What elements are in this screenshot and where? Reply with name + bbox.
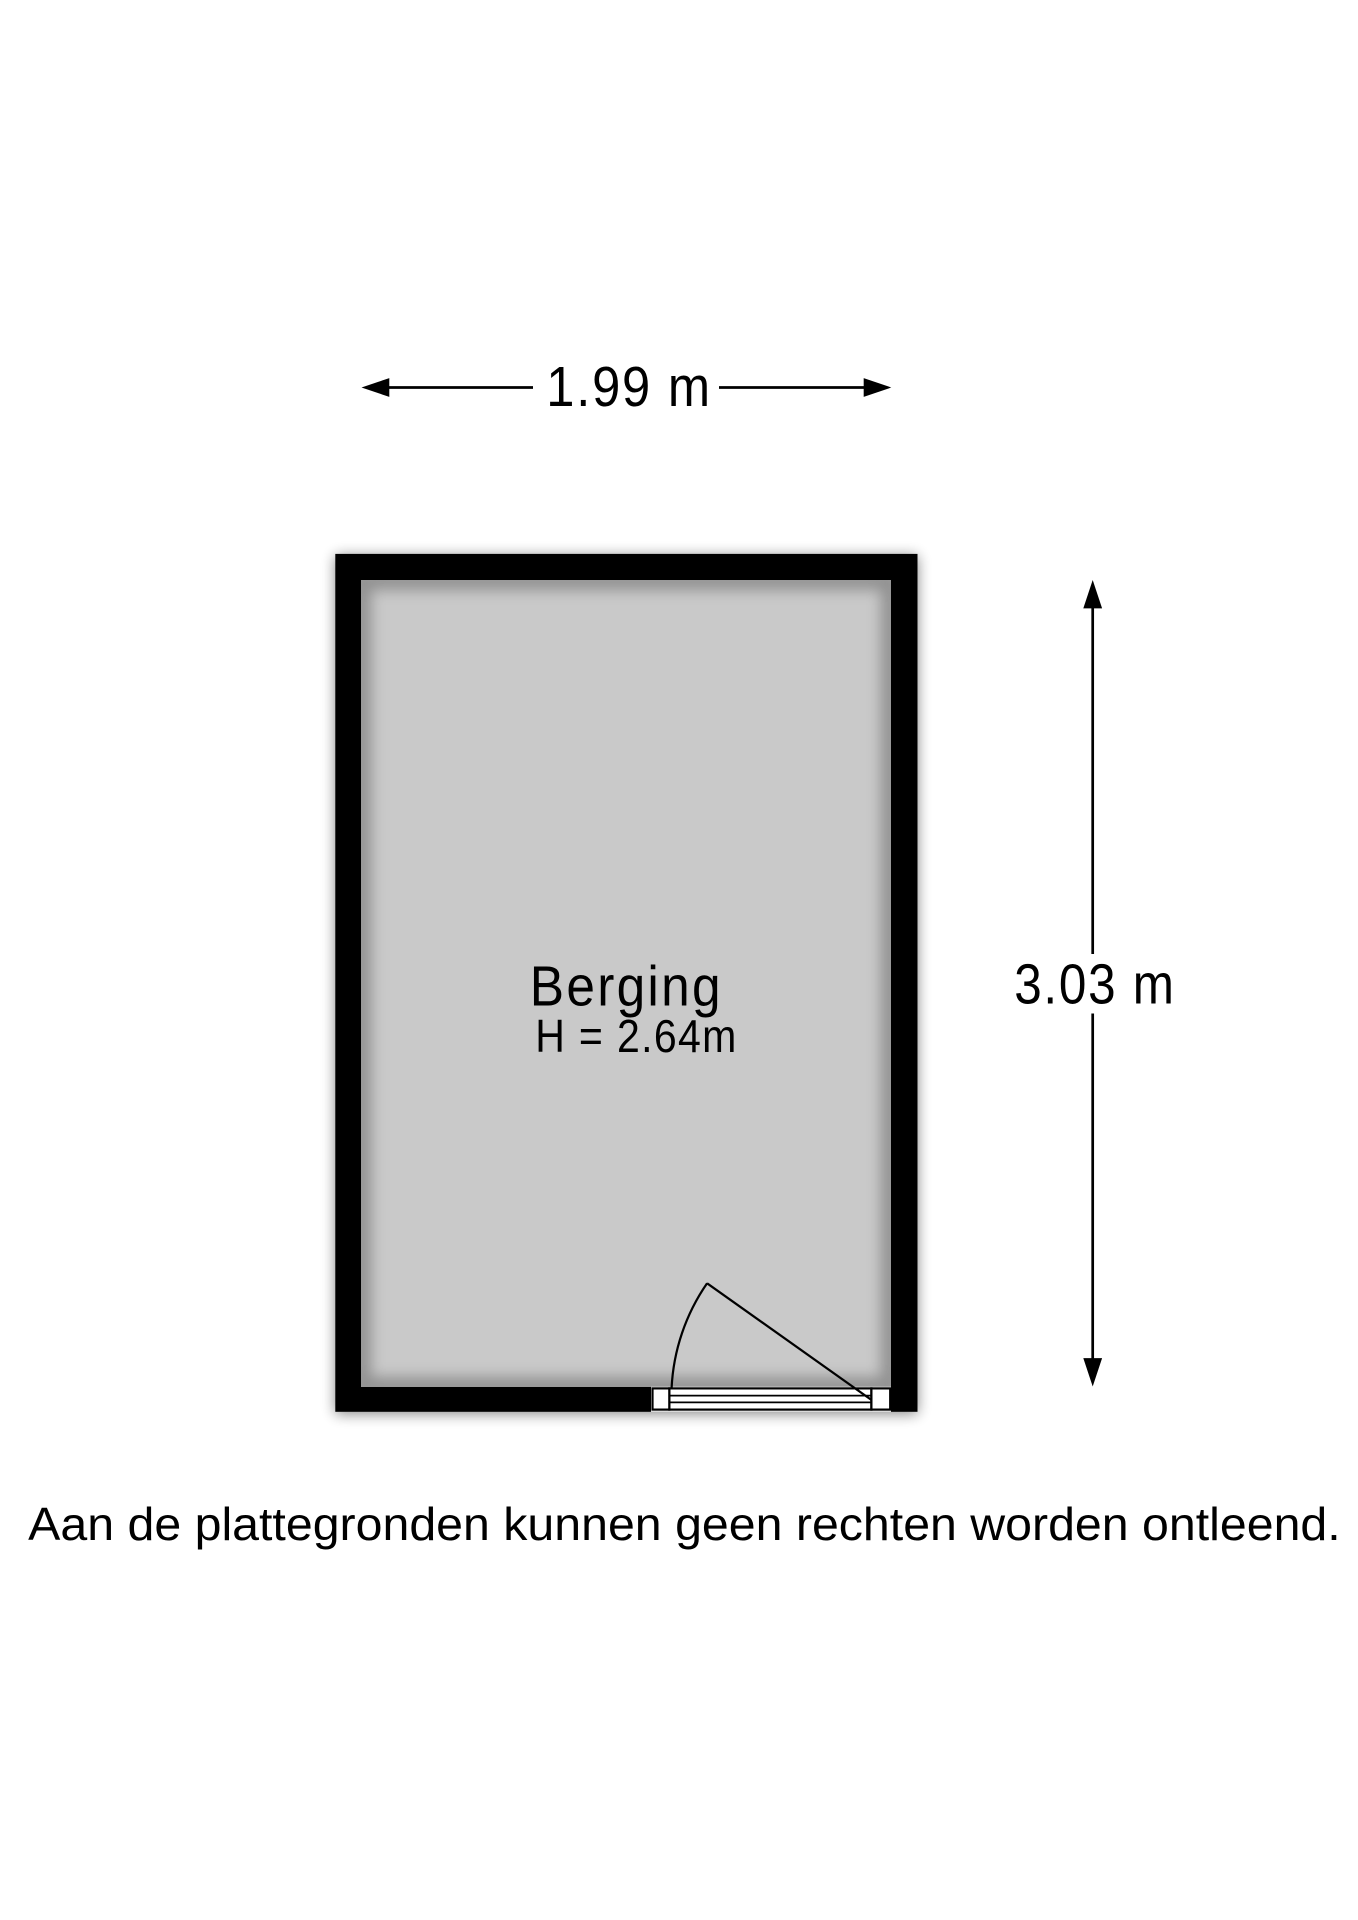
svg-text:H = 2.64m: H = 2.64m: [535, 1010, 738, 1062]
svg-text:3.03 m: 3.03 m: [1014, 953, 1175, 1017]
svg-text:1.99 m: 1.99 m: [546, 355, 712, 419]
svg-text:Aan de plattegronden kunnen ge: Aan de plattegronden kunnen geen rechten…: [28, 1498, 1341, 1550]
svg-text:Berging: Berging: [530, 954, 723, 1018]
